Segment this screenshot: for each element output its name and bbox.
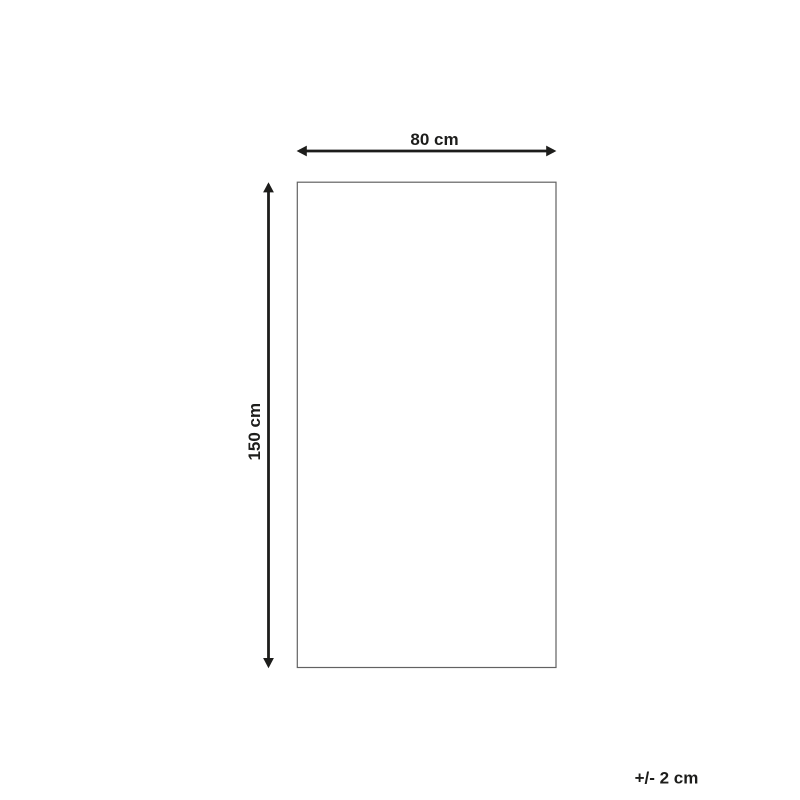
- svg-text:150 cm: 150 cm: [245, 403, 264, 461]
- svg-text:+/- 2 cm: +/- 2 cm: [635, 769, 699, 788]
- svg-text:80 cm: 80 cm: [410, 130, 458, 149]
